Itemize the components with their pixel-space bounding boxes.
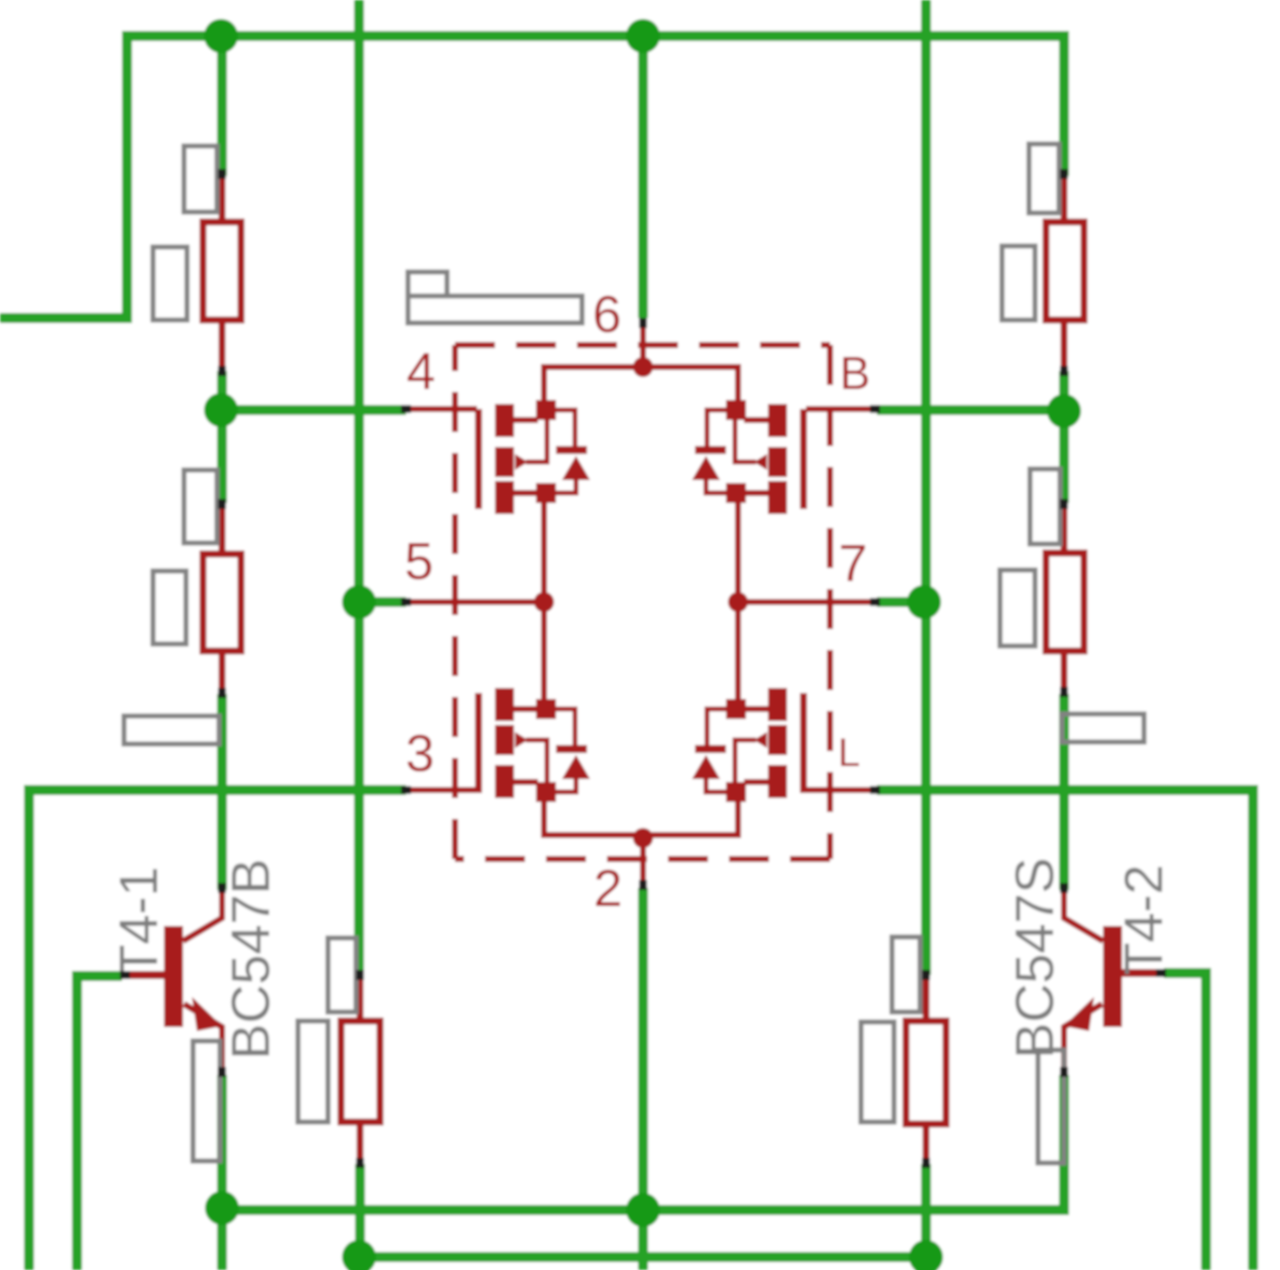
- svg-text:B: B: [840, 347, 871, 399]
- svg-text:5: 5: [405, 533, 434, 591]
- svg-text:T4-2: T4-2: [1114, 864, 1174, 975]
- svg-text:7: 7: [839, 535, 868, 593]
- svg-text:6: 6: [593, 286, 622, 344]
- svg-text:BC547B: BC547B: [221, 858, 281, 1059]
- svg-text:T4-1: T4-1: [109, 866, 169, 977]
- svg-text:BC547S: BC547S: [1005, 857, 1065, 1058]
- svg-text:4: 4: [407, 343, 436, 401]
- svg-text:2: 2: [594, 860, 623, 918]
- svg-text:3: 3: [406, 725, 435, 783]
- svg-text:L: L: [838, 731, 860, 775]
